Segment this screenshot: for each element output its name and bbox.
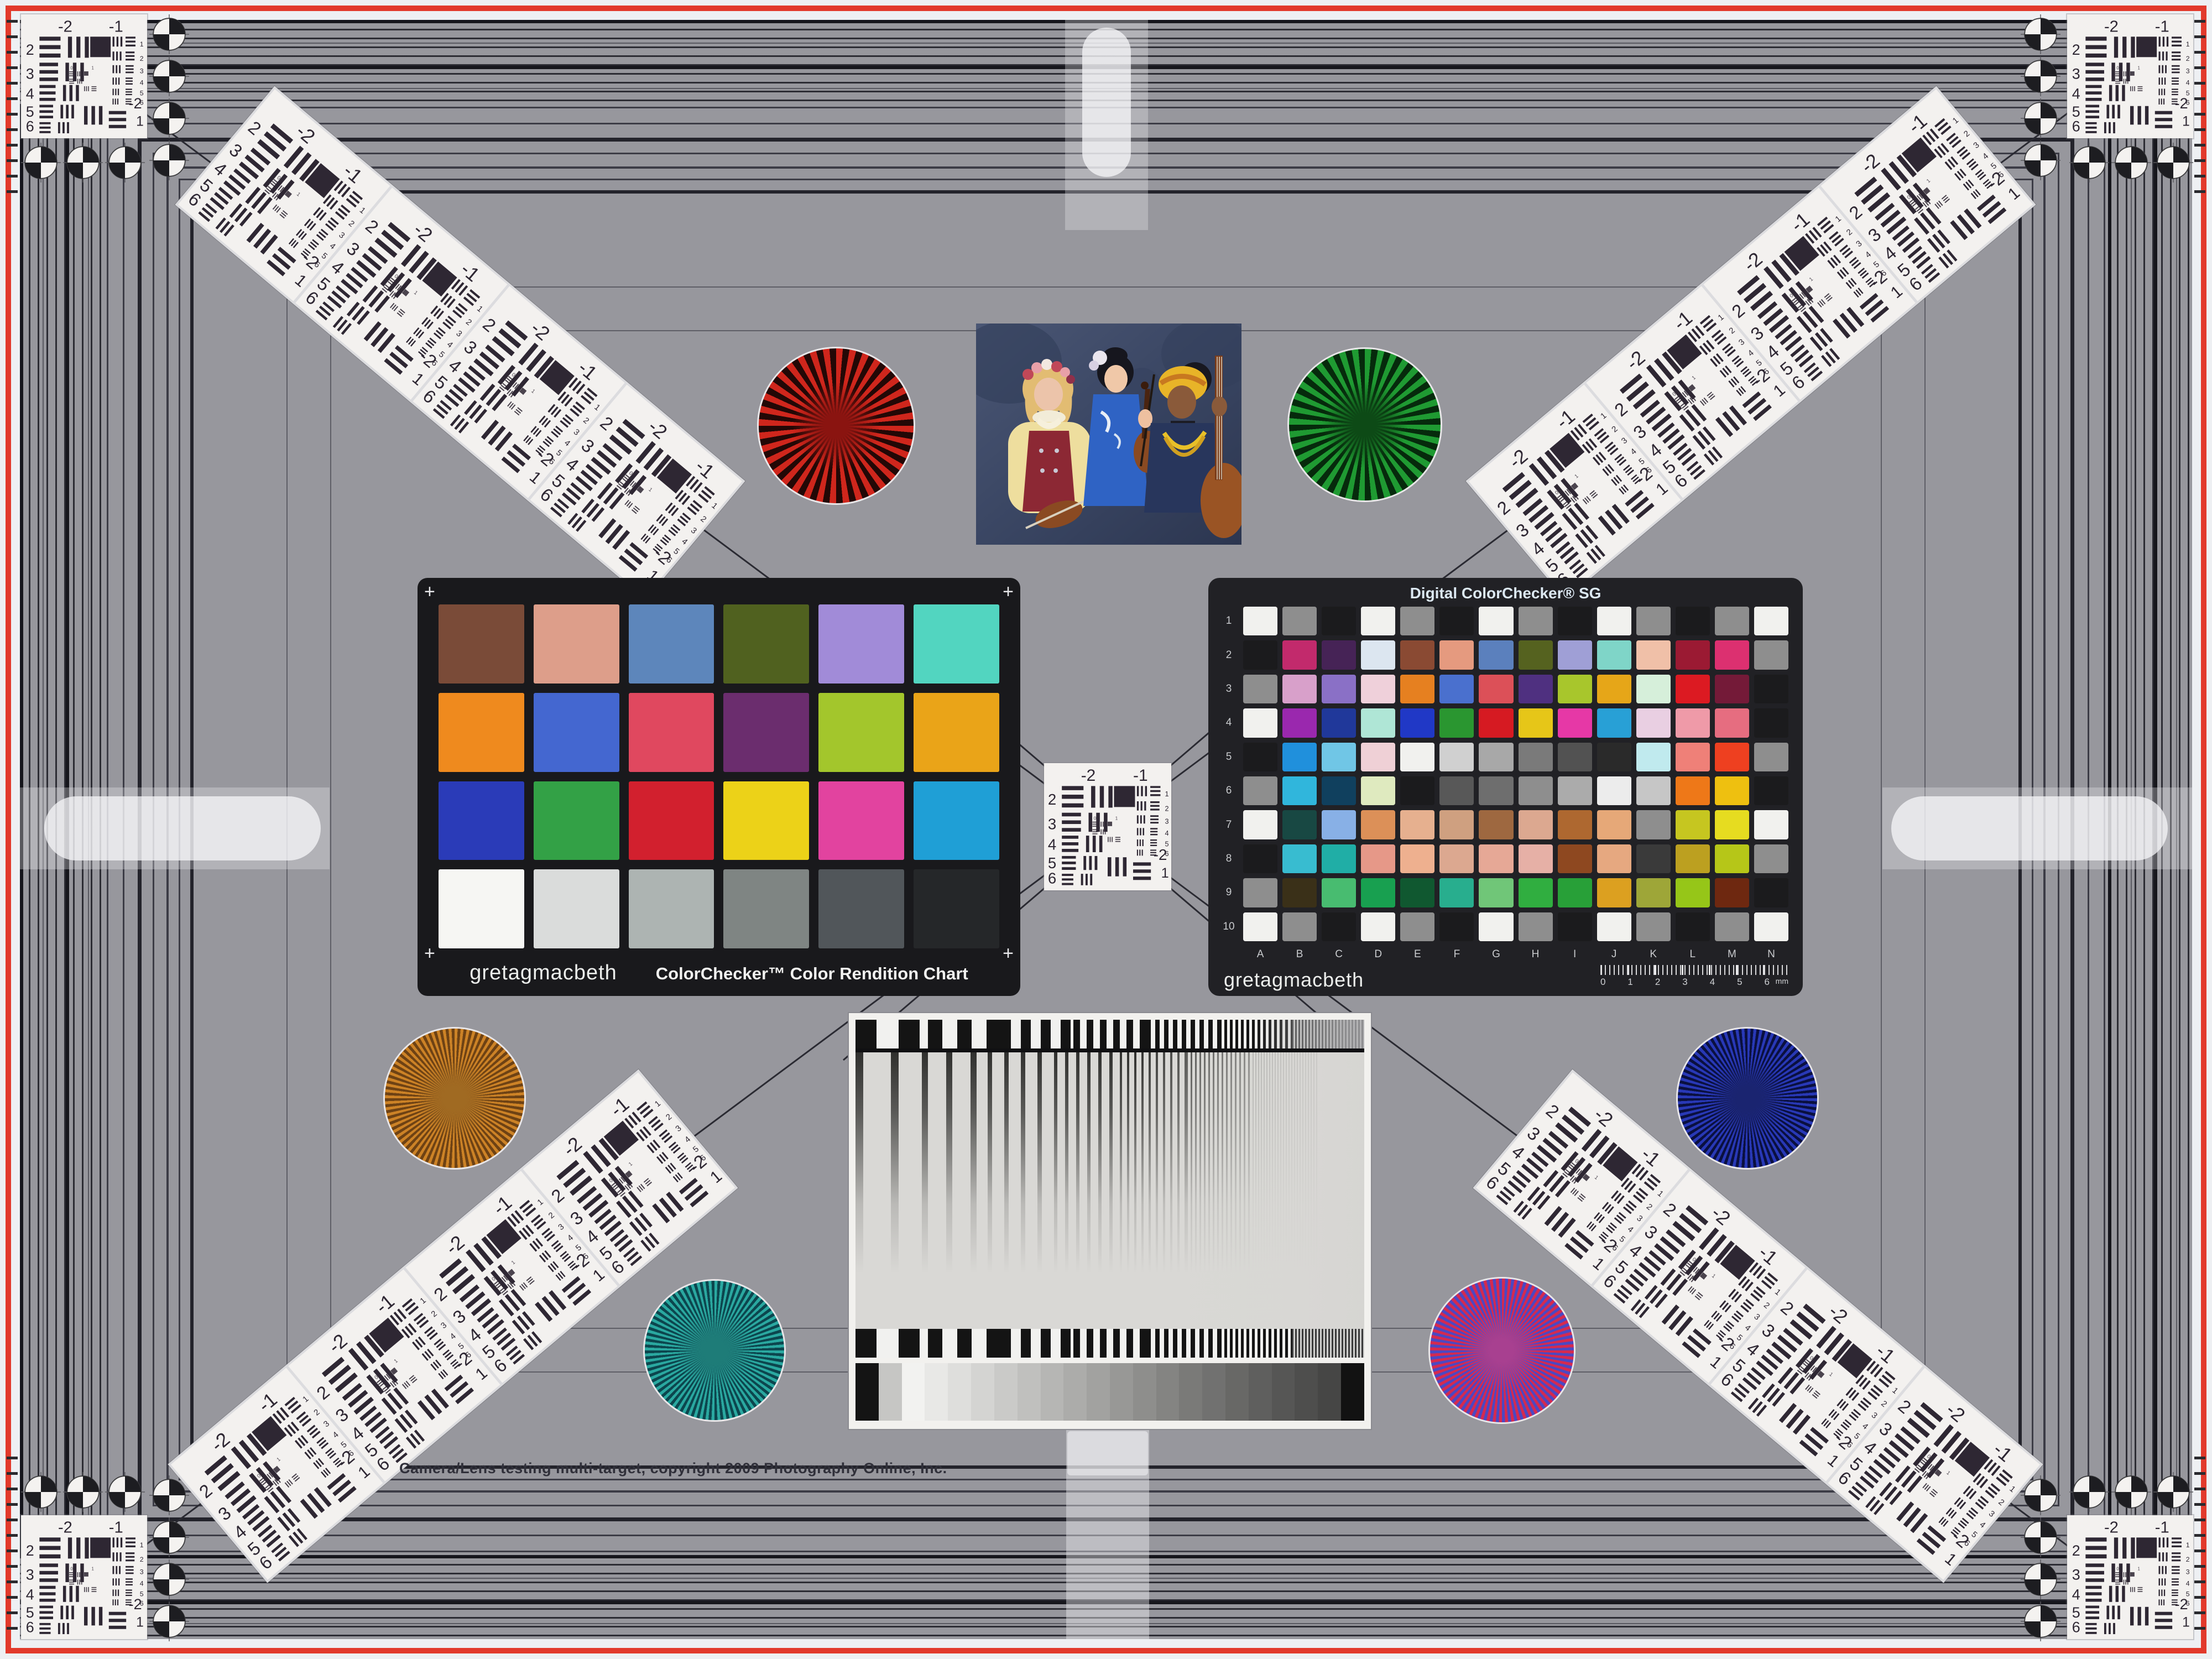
color-patch bbox=[1439, 640, 1474, 669]
registration-mark-icon bbox=[2021, 98, 2060, 138]
svg-text:1: 1 bbox=[2137, 1567, 2140, 1572]
gray-step bbox=[1156, 1363, 1180, 1421]
color-patch bbox=[629, 604, 714, 684]
registration-mark-icon bbox=[2021, 140, 2060, 180]
siemens-star-magenta bbox=[1428, 1277, 1575, 1424]
color-patch bbox=[1243, 607, 1277, 635]
margin-ruler-ticks bbox=[2194, 20, 2205, 202]
svg-text:-2: -2 bbox=[1081, 766, 1096, 785]
svg-text:2: 2 bbox=[26, 41, 34, 58]
color-patch bbox=[723, 781, 809, 860]
svg-text:2: 2 bbox=[140, 55, 144, 62]
gray-step bbox=[1087, 1363, 1110, 1421]
registration-mark-icon bbox=[2021, 1559, 2060, 1599]
usaf-target: -2-123456123456-2101 bbox=[2067, 14, 2193, 138]
color-patch bbox=[1754, 912, 1788, 941]
color-patch bbox=[1400, 640, 1434, 669]
color-patch bbox=[1439, 776, 1474, 805]
color-patch bbox=[1282, 640, 1317, 669]
color-patch bbox=[1597, 607, 1631, 635]
sg-row-label: 2 bbox=[1219, 640, 1238, 669]
color-patch bbox=[818, 693, 904, 772]
color-patch bbox=[1558, 607, 1592, 635]
color-patch bbox=[439, 781, 524, 860]
color-patch bbox=[1715, 912, 1749, 941]
sg-row-label: 4 bbox=[1219, 708, 1238, 737]
color-patch bbox=[1597, 675, 1631, 703]
color-patch bbox=[1597, 810, 1631, 839]
usaf-target: -2-123456123456-2101 bbox=[21, 14, 147, 138]
color-patch bbox=[1676, 743, 1710, 771]
registration-mark-icon bbox=[149, 140, 189, 180]
color-patch bbox=[1361, 878, 1395, 907]
color-patch bbox=[1322, 607, 1356, 635]
color-patch bbox=[1597, 912, 1631, 941]
color-patch bbox=[1439, 844, 1474, 873]
sg-col-label: L bbox=[1676, 946, 1710, 963]
svg-text:3: 3 bbox=[140, 1568, 144, 1575]
colorchecker-brand: gretagmacbeth bbox=[469, 961, 617, 985]
registration-mark-icon bbox=[2021, 1517, 2060, 1557]
color-patch bbox=[629, 693, 714, 772]
svg-text:2: 2 bbox=[2186, 55, 2190, 62]
svg-text:6: 6 bbox=[1048, 869, 1056, 886]
svg-text:2: 2 bbox=[2186, 1556, 2190, 1563]
gray-step bbox=[1133, 1363, 1156, 1421]
svg-text:4: 4 bbox=[26, 1586, 34, 1603]
colorchecker-sg-chart: Digital ColorChecker® SG 12345678910ABCD… bbox=[1208, 578, 1803, 996]
color-patch bbox=[1597, 776, 1631, 805]
ruler-number: 2 bbox=[1655, 977, 1660, 988]
svg-text:3: 3 bbox=[2186, 1568, 2190, 1575]
svg-text:0: 0 bbox=[70, 66, 73, 71]
color-patch bbox=[1754, 708, 1788, 737]
svg-text:1: 1 bbox=[2182, 1615, 2190, 1630]
color-patch bbox=[1715, 776, 1749, 805]
color-patch bbox=[1558, 844, 1592, 873]
registration-mark-icon bbox=[149, 1517, 189, 1557]
svg-text:3: 3 bbox=[2072, 1566, 2080, 1583]
svg-text:1: 1 bbox=[136, 1615, 144, 1630]
color-patch bbox=[1636, 878, 1671, 907]
color-patch bbox=[1558, 912, 1592, 941]
color-patch bbox=[1322, 776, 1356, 805]
crop-mark: + bbox=[1003, 944, 1014, 963]
color-patch bbox=[1558, 743, 1592, 771]
color-patch bbox=[1519, 878, 1553, 907]
svg-text:4: 4 bbox=[140, 79, 144, 87]
svg-text:3: 3 bbox=[2186, 67, 2190, 75]
color-patch bbox=[1400, 743, 1434, 771]
sg-col-label: D bbox=[1361, 946, 1395, 963]
svg-text:2: 2 bbox=[2072, 41, 2080, 58]
registration-mark-icon bbox=[149, 1601, 189, 1641]
svg-text:1: 1 bbox=[1165, 790, 1169, 798]
color-patch bbox=[1676, 675, 1710, 703]
svg-text:1: 1 bbox=[136, 114, 144, 129]
color-patch bbox=[1282, 912, 1317, 941]
ruler-number: 1 bbox=[1627, 977, 1632, 988]
sg-row-label: 5 bbox=[1219, 743, 1238, 771]
color-patch bbox=[1676, 776, 1710, 805]
gray-step bbox=[1179, 1363, 1202, 1421]
color-patch bbox=[1322, 844, 1356, 873]
color-patch bbox=[1400, 844, 1434, 873]
color-patch bbox=[1754, 810, 1788, 839]
margin-ruler-ticks bbox=[2194, 1457, 2205, 1639]
svg-text:5: 5 bbox=[1048, 854, 1056, 872]
color-patch bbox=[1676, 607, 1710, 635]
svg-text:4: 4 bbox=[2186, 79, 2190, 87]
center-resolution-target: -2-123456123456-2101 bbox=[1044, 763, 1171, 890]
sg-col-label: K bbox=[1636, 946, 1671, 963]
color-patch bbox=[1715, 844, 1749, 873]
svg-text:-2: -2 bbox=[1154, 846, 1167, 863]
sg-col-label: C bbox=[1322, 946, 1356, 963]
svg-text:4: 4 bbox=[2072, 85, 2080, 102]
svg-text:6: 6 bbox=[2072, 1619, 2080, 1636]
svg-text:4: 4 bbox=[2186, 1580, 2190, 1588]
color-patch bbox=[1400, 912, 1434, 941]
color-patch bbox=[1519, 640, 1553, 669]
sg-title: Digital ColorChecker® SG bbox=[1208, 585, 1803, 602]
bottom-marker-bar bbox=[1067, 1431, 1148, 1475]
color-patch bbox=[1243, 776, 1277, 805]
sweep-comb-bottom bbox=[855, 1329, 1364, 1358]
color-patch bbox=[1282, 708, 1317, 737]
ruler-number: 0 bbox=[1600, 977, 1605, 988]
color-patch bbox=[1361, 810, 1395, 839]
color-patch bbox=[1479, 708, 1513, 737]
color-patch bbox=[1322, 708, 1356, 737]
color-patch bbox=[1243, 708, 1277, 737]
color-patch bbox=[1519, 607, 1553, 635]
right-marker-bar bbox=[1891, 796, 2168, 860]
color-patch bbox=[1322, 810, 1356, 839]
registration-mark-icon bbox=[2069, 143, 2109, 182]
color-patch bbox=[1243, 844, 1277, 873]
color-patch bbox=[1519, 708, 1553, 737]
svg-text:-2: -2 bbox=[129, 95, 142, 112]
color-patch bbox=[1754, 607, 1788, 635]
color-patch bbox=[818, 781, 904, 860]
svg-text:6: 6 bbox=[2072, 118, 2080, 135]
gray-step bbox=[1110, 1363, 1133, 1421]
gray-step bbox=[1018, 1363, 1041, 1421]
svg-text:1: 1 bbox=[2182, 114, 2190, 129]
color-patch bbox=[1282, 607, 1317, 635]
color-patch bbox=[1715, 743, 1749, 771]
color-patch bbox=[1558, 675, 1592, 703]
registration-mark-icon bbox=[149, 1559, 189, 1599]
color-patch bbox=[1282, 743, 1317, 771]
svg-text:1: 1 bbox=[1161, 865, 1169, 881]
color-patch bbox=[1754, 844, 1788, 873]
color-patch bbox=[1636, 640, 1671, 669]
svg-text:2: 2 bbox=[1048, 791, 1056, 808]
sg-col-label: I bbox=[1558, 946, 1592, 963]
siemens-star-red bbox=[757, 347, 915, 505]
svg-text:1: 1 bbox=[2137, 66, 2140, 71]
svg-text:5: 5 bbox=[2072, 103, 2080, 120]
usaf-target: -2-123456123456-2101 bbox=[1044, 763, 1171, 890]
sg-row-label: 9 bbox=[1219, 878, 1238, 907]
color-patch bbox=[1322, 640, 1356, 669]
color-patch bbox=[1282, 844, 1317, 873]
color-patch bbox=[1400, 878, 1434, 907]
svg-text:1: 1 bbox=[140, 40, 144, 48]
color-patch bbox=[1636, 912, 1671, 941]
sg-ruler: 0mm123456 bbox=[1600, 965, 1788, 990]
gray-step bbox=[1318, 1363, 1341, 1421]
svg-text:5: 5 bbox=[26, 1604, 34, 1621]
color-patch bbox=[1400, 708, 1434, 737]
color-patch bbox=[1715, 810, 1749, 839]
corner-panel-bottom-left: -2-123456123456-2101 bbox=[21, 1468, 194, 1640]
colorchecker-grid bbox=[439, 604, 999, 948]
svg-text:0: 0 bbox=[1094, 816, 1097, 821]
registration-mark-icon bbox=[2153, 143, 2193, 182]
color-patch bbox=[1597, 640, 1631, 669]
usaf-target: -2-123456123456-2101 bbox=[21, 1515, 147, 1639]
svg-text:4: 4 bbox=[140, 1580, 144, 1588]
svg-text:2: 2 bbox=[26, 1542, 34, 1559]
color-patch bbox=[818, 869, 904, 948]
svg-text:0: 0 bbox=[70, 1567, 73, 1572]
sg-col-label: J bbox=[1597, 946, 1631, 963]
color-patch bbox=[1715, 878, 1749, 907]
gray-step bbox=[1272, 1363, 1295, 1421]
color-patch bbox=[1439, 878, 1474, 907]
registration-mark-icon bbox=[63, 143, 103, 182]
color-patch bbox=[1754, 640, 1788, 669]
svg-text:6: 6 bbox=[26, 1619, 34, 1636]
color-patch bbox=[1479, 810, 1513, 839]
color-patch bbox=[1676, 912, 1710, 941]
color-patch bbox=[1636, 743, 1671, 771]
color-patch bbox=[1715, 607, 1749, 635]
gray-step bbox=[948, 1363, 971, 1421]
color-patch bbox=[1361, 640, 1395, 669]
top-marker-bar bbox=[1082, 28, 1131, 177]
left-marker-bar bbox=[44, 796, 321, 860]
color-patch bbox=[1282, 776, 1317, 805]
svg-text:0: 0 bbox=[2116, 1567, 2119, 1572]
gray-step bbox=[1341, 1363, 1364, 1421]
color-patch bbox=[439, 604, 524, 684]
svg-text:-1: -1 bbox=[2155, 18, 2169, 35]
siemens-star-teal bbox=[643, 1279, 786, 1422]
siemens-star-green bbox=[1287, 347, 1442, 502]
registration-mark-icon bbox=[63, 1472, 103, 1512]
color-patch bbox=[1361, 675, 1395, 703]
musicians-photo bbox=[976, 324, 1241, 545]
color-patch bbox=[1282, 675, 1317, 703]
color-patch bbox=[1715, 675, 1749, 703]
margin-ruler-ticks bbox=[7, 20, 18, 202]
copyright-text: Camera/Lens testing multi-target, copyri… bbox=[399, 1460, 947, 1477]
color-patch bbox=[1479, 675, 1513, 703]
color-patch bbox=[1519, 810, 1553, 839]
color-patch bbox=[629, 781, 714, 860]
svg-text:2: 2 bbox=[2072, 1542, 2080, 1559]
sg-row-label: 3 bbox=[1219, 675, 1238, 703]
sg-col-label: A bbox=[1243, 946, 1277, 963]
color-patch bbox=[1439, 607, 1474, 635]
color-patch bbox=[1558, 810, 1592, 839]
color-patch bbox=[1558, 708, 1592, 737]
svg-text:3: 3 bbox=[1048, 816, 1056, 833]
registration-mark-icon bbox=[149, 14, 189, 54]
color-patch bbox=[1519, 844, 1553, 873]
sg-row-label: 7 bbox=[1219, 810, 1238, 839]
gray-step bbox=[1249, 1363, 1272, 1421]
color-patch bbox=[1715, 708, 1749, 737]
color-patch bbox=[1322, 743, 1356, 771]
color-patch bbox=[1322, 675, 1356, 703]
gray-step bbox=[994, 1363, 1018, 1421]
color-patch bbox=[534, 604, 619, 684]
colorchecker-24-chart: gretagmacbeth ColorChecker™ Color Rendit… bbox=[418, 578, 1020, 996]
svg-text:4: 4 bbox=[1165, 830, 1169, 837]
color-patch bbox=[1558, 878, 1592, 907]
grayscale-step-wedge bbox=[855, 1363, 1364, 1421]
registration-mark-icon bbox=[2069, 1472, 2109, 1512]
sg-col-label: F bbox=[1439, 946, 1474, 963]
test-chart-photo: -2-123456123456-2101 -2-123456123456-210… bbox=[0, 0, 2212, 1659]
color-patch bbox=[1479, 607, 1513, 635]
svg-text:4: 4 bbox=[2072, 1586, 2080, 1603]
color-patch bbox=[534, 781, 619, 860]
color-patch bbox=[534, 869, 619, 948]
gray-step bbox=[1063, 1363, 1087, 1421]
siemens-star-orange bbox=[383, 1027, 526, 1170]
crop-mark: + bbox=[424, 944, 435, 963]
color-patch bbox=[1243, 675, 1277, 703]
color-patch bbox=[818, 604, 904, 684]
color-patch bbox=[1676, 878, 1710, 907]
registration-mark-icon bbox=[21, 143, 61, 182]
color-patch bbox=[1361, 844, 1395, 873]
siemens-star-blue bbox=[1676, 1027, 1819, 1170]
color-patch bbox=[1519, 743, 1553, 771]
sg-row-label: 8 bbox=[1219, 844, 1238, 873]
color-patch bbox=[1676, 810, 1710, 839]
color-patch bbox=[723, 604, 809, 684]
color-patch bbox=[1243, 912, 1277, 941]
gray-step bbox=[1202, 1363, 1225, 1421]
svg-text:4: 4 bbox=[26, 85, 34, 102]
sweep-body bbox=[855, 1052, 1364, 1329]
color-patch bbox=[439, 693, 524, 772]
color-patch bbox=[1439, 675, 1474, 703]
color-patch bbox=[1439, 743, 1474, 771]
color-patch bbox=[1558, 640, 1592, 669]
svg-text:1: 1 bbox=[91, 66, 93, 71]
color-patch bbox=[1676, 708, 1710, 737]
svg-text:3: 3 bbox=[2072, 65, 2080, 82]
color-patch bbox=[1754, 743, 1788, 771]
color-patch bbox=[914, 869, 999, 948]
gray-step bbox=[971, 1363, 994, 1421]
svg-text:3: 3 bbox=[140, 67, 144, 75]
color-patch bbox=[1400, 607, 1434, 635]
color-patch bbox=[1754, 776, 1788, 805]
color-patch bbox=[1322, 912, 1356, 941]
color-patch bbox=[1243, 810, 1277, 839]
color-patch bbox=[1597, 743, 1631, 771]
color-patch bbox=[1636, 708, 1671, 737]
svg-text:5: 5 bbox=[2072, 1604, 2080, 1621]
color-patch bbox=[723, 693, 809, 772]
svg-text:-2: -2 bbox=[58, 18, 72, 35]
color-patch bbox=[1361, 776, 1395, 805]
color-patch bbox=[1400, 776, 1434, 805]
color-patch bbox=[1597, 844, 1631, 873]
color-patch bbox=[1636, 607, 1671, 635]
svg-text:3: 3 bbox=[26, 65, 34, 82]
color-patch bbox=[439, 869, 524, 948]
color-patch bbox=[1558, 776, 1592, 805]
color-patch bbox=[1361, 607, 1395, 635]
svg-text:-1: -1 bbox=[1133, 766, 1148, 785]
color-patch bbox=[1400, 675, 1434, 703]
color-patch bbox=[1400, 810, 1434, 839]
svg-text:1: 1 bbox=[2186, 1541, 2190, 1549]
registration-mark-icon bbox=[2021, 1601, 2060, 1641]
color-patch bbox=[1636, 844, 1671, 873]
svg-text:-2: -2 bbox=[2104, 1519, 2119, 1536]
color-patch bbox=[1715, 640, 1749, 669]
svg-text:-2: -2 bbox=[58, 1519, 72, 1536]
sg-row-label: 1 bbox=[1219, 607, 1238, 635]
color-patch bbox=[1676, 844, 1710, 873]
color-patch bbox=[534, 693, 619, 772]
svg-text:1: 1 bbox=[2186, 40, 2190, 48]
svg-text:5: 5 bbox=[26, 103, 34, 120]
color-patch bbox=[1282, 878, 1317, 907]
color-patch bbox=[1439, 912, 1474, 941]
registration-mark-icon bbox=[149, 56, 189, 96]
color-patch bbox=[1479, 743, 1513, 771]
ruler-number: 6 bbox=[1765, 977, 1770, 988]
svg-text:-1: -1 bbox=[2155, 1519, 2169, 1536]
margin-ruler-ticks bbox=[7, 1457, 18, 1639]
color-patch bbox=[1519, 776, 1553, 805]
svg-text:-1: -1 bbox=[109, 18, 123, 35]
color-patch bbox=[723, 869, 809, 948]
registration-mark-icon bbox=[105, 143, 145, 182]
crop-mark: + bbox=[424, 582, 435, 601]
color-patch bbox=[1479, 878, 1513, 907]
color-patch bbox=[1597, 878, 1631, 907]
svg-text:1: 1 bbox=[140, 1541, 144, 1549]
svg-text:-1: -1 bbox=[109, 1519, 123, 1536]
sg-col-label: E bbox=[1400, 946, 1434, 963]
ruler-unit: mm bbox=[1776, 977, 1788, 985]
color-patch bbox=[1479, 844, 1513, 873]
color-patch bbox=[1519, 912, 1553, 941]
svg-text:4: 4 bbox=[1048, 836, 1056, 853]
svg-text:-2: -2 bbox=[2175, 1596, 2188, 1613]
color-patch bbox=[1754, 675, 1788, 703]
svg-text:0: 0 bbox=[2116, 66, 2119, 71]
color-patch bbox=[1519, 675, 1553, 703]
sg-col-label: H bbox=[1519, 946, 1553, 963]
color-patch bbox=[1322, 878, 1356, 907]
registration-mark-icon bbox=[21, 1472, 61, 1512]
sg-col-label: N bbox=[1754, 946, 1788, 963]
